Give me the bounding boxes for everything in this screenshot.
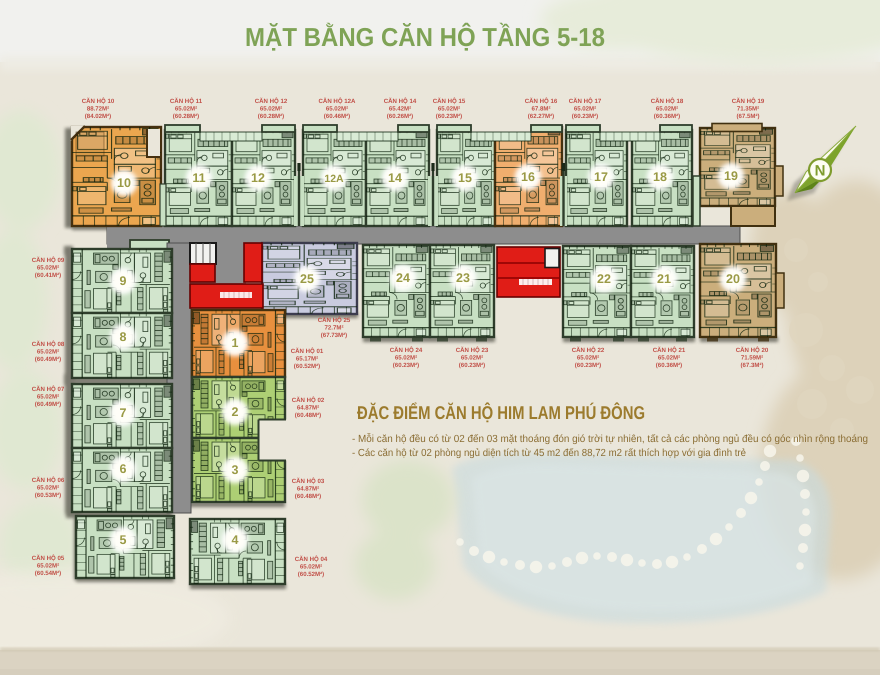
svg-text:20: 20 <box>726 272 740 286</box>
svg-text:17: 17 <box>594 170 608 184</box>
svg-text:6: 6 <box>120 462 127 476</box>
svg-text:1: 1 <box>232 336 239 350</box>
svg-text:16: 16 <box>521 170 535 184</box>
svg-text:23: 23 <box>456 271 470 285</box>
svg-text:8: 8 <box>120 330 127 344</box>
svg-text:12: 12 <box>251 171 265 185</box>
svg-text:25: 25 <box>300 272 314 286</box>
svg-text:7: 7 <box>120 406 127 420</box>
svg-text:MẶT BẰNG CĂN HỘ TẦNG 5-18: MẶT BẰNG CĂN HỘ TẦNG 5-18 <box>245 22 605 52</box>
svg-text:19: 19 <box>724 169 738 183</box>
svg-text:10: 10 <box>117 176 131 190</box>
svg-text:- Mỗi căn hộ đều có từ 02 đến: - Mỗi căn hộ đều có từ 02 đến 03 mặt tho… <box>352 433 868 445</box>
svg-text:3: 3 <box>232 463 239 477</box>
svg-text:5: 5 <box>120 533 127 547</box>
svg-text:9: 9 <box>120 274 127 288</box>
svg-text:21: 21 <box>657 272 671 286</box>
svg-text:N: N <box>815 163 826 180</box>
svg-text:14: 14 <box>388 171 402 185</box>
svg-text:4: 4 <box>232 533 239 547</box>
svg-text:11: 11 <box>192 171 205 185</box>
svg-text:ĐẶC ĐIỂM CĂN HỘ HIM LAM PHÚ ĐÔ: ĐẶC ĐIỂM CĂN HỘ HIM LAM PHÚ ĐÔNG <box>357 402 645 423</box>
svg-text:15: 15 <box>458 171 472 185</box>
svg-text:12A: 12A <box>324 173 344 185</box>
svg-text:18: 18 <box>653 170 667 184</box>
svg-text:24: 24 <box>396 271 410 285</box>
svg-text:22: 22 <box>597 272 611 286</box>
svg-text:- Các căn hộ từ 02 phòng ngủ d: - Các căn hộ từ 02 phòng ngủ diện tích t… <box>352 448 746 459</box>
svg-text:2: 2 <box>232 405 239 419</box>
